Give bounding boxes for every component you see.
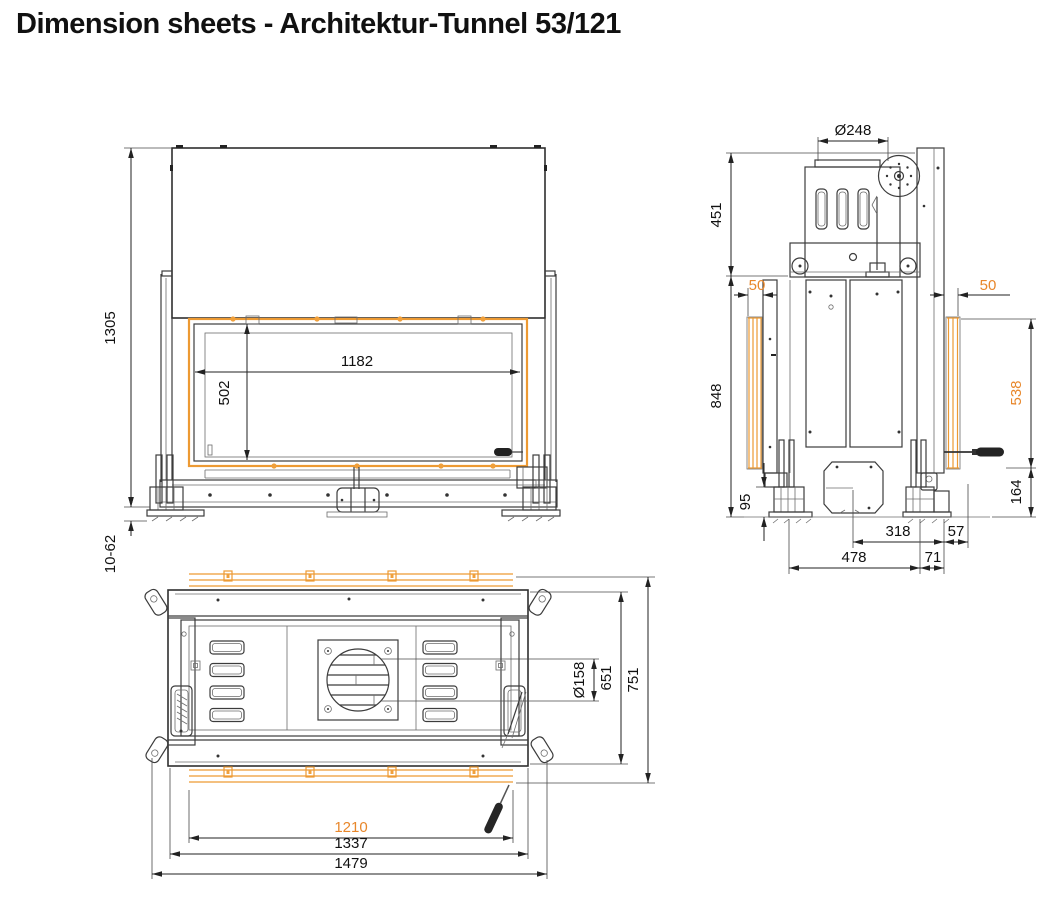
dim-label-1337: 1337 (334, 835, 367, 852)
dim-rear-foot-offset: 71 (920, 549, 944, 568)
right-vent-slots (423, 641, 457, 722)
dim-label-50-front: 50 (749, 277, 766, 294)
dim-label-478: 478 (841, 549, 866, 566)
dim-glass-height: 502 (216, 324, 247, 460)
corner-lug-bottom-left (144, 735, 170, 764)
dim-rear-overlap: 50 (930, 277, 1010, 316)
dim-label-751: 751 (625, 667, 642, 692)
side-left-foot (769, 440, 812, 523)
left-door-latch (168, 618, 200, 745)
rear-panel (917, 148, 944, 473)
dim-body-height: 848 (708, 276, 744, 517)
dim-label-451: 451 (708, 202, 725, 227)
right-door-latch (496, 618, 528, 748)
dim-frame-height: 538 (961, 319, 1036, 468)
dim-label-1182: 1182 (341, 353, 373, 370)
front-frame-strip-orange (747, 317, 762, 469)
dim-foot-adjustment: 10-62 (102, 492, 147, 573)
side-view: Ø248 451 848 95 (708, 122, 1036, 574)
dim-label-1210: 1210 (334, 819, 367, 836)
technical-drawing: 1305 10-62 1182 502 (0, 0, 1055, 899)
dim-label-71: 71 (925, 549, 942, 566)
bottom-view: Ø158 651 751 1210 (143, 571, 655, 879)
dim-label-95: 95 (737, 494, 754, 511)
dimension-sheet-page: Dimension sheets - Architektur-Tunnel 53… (0, 0, 1055, 899)
dim-label-flue: Ø248 (835, 122, 872, 139)
body-outline-top (168, 590, 528, 766)
left-vent-slots (210, 641, 244, 722)
dim-flue-diameter: Ø248 (818, 122, 888, 161)
hood-outline (170, 145, 547, 318)
dim-label-57: 57 (948, 523, 965, 540)
dim-label-502: 502 (216, 380, 233, 405)
dim-front-overlap: 50 (734, 277, 777, 316)
glass-pane (205, 333, 512, 457)
dim-upper-height: 451 (708, 153, 915, 276)
glass-frame-orange (189, 316, 527, 469)
dim-handle-height: 164 (992, 468, 1036, 517)
dim-label-538: 538 (1008, 380, 1025, 405)
combustion-air-connector (824, 462, 883, 513)
upper-convection-box (805, 160, 900, 277)
dim-label-1305: 1305 (102, 311, 119, 344)
door-handle (494, 448, 523, 456)
dim-label-d158: Ø158 (571, 662, 588, 699)
front-view: 1305 10-62 1182 502 (102, 145, 560, 573)
bottom-frame-band-orange (189, 767, 513, 782)
firebox-body-side (806, 280, 902, 447)
front-left-foot (147, 455, 204, 521)
lower-recessed-bar (205, 470, 510, 478)
dim-label-318: 318 (885, 523, 910, 540)
dim-label-50-rear: 50 (980, 277, 997, 294)
center-actuator (327, 467, 387, 517)
rear-frame-strip-orange (946, 317, 960, 469)
dim-label-651: 651 (598, 665, 615, 690)
air-inlet-grille (318, 640, 398, 720)
cold-hand-tool (483, 783, 513, 834)
dim-rear-offset: 57 (944, 484, 968, 548)
top-frame-band-orange (189, 571, 513, 586)
dim-label-164: 164 (1008, 479, 1025, 504)
dim-label-848: 848 (708, 383, 725, 408)
dim-glass-width: 1182 (195, 353, 520, 372)
dim-label-1479: 1479 (334, 855, 367, 872)
dim-air-inlet-diameter: Ø158 (381, 659, 599, 701)
corner-lug-bottom-right (529, 735, 555, 764)
corner-lug-top-left (143, 588, 169, 617)
front-column-side (763, 280, 790, 487)
dim-label-10-62: 10-62 (102, 535, 119, 573)
lift-pulley (879, 156, 920, 197)
